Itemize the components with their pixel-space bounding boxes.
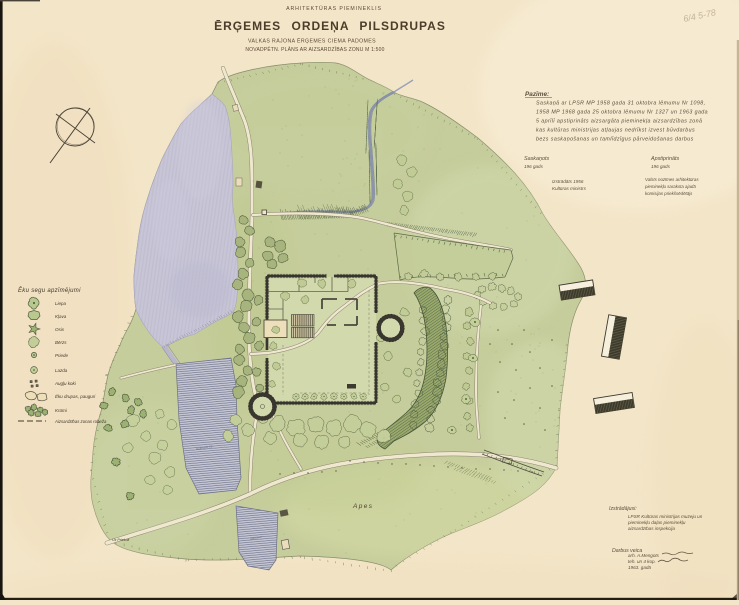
svg-text:Apstiprināts: Apstiprināts — [650, 156, 679, 162]
svg-text:196 gads: 196 gads — [524, 164, 544, 169]
svg-text:teh. un 4 kop.: teh. un 4 kop. — [628, 559, 656, 564]
svg-text:Izstrādājusi:: Izstrādājusi: — [609, 506, 637, 512]
svg-text:Saskaņā ar LPSR MP 1958 gada 3: Saskaņā ar LPSR MP 1958 gada 31 oktobra … — [536, 101, 706, 107]
svg-text:196 gads: 196 gads — [651, 164, 671, 169]
svg-text:1958 MP 1968 gada 25 oktobra l: 1958 MP 1968 gada 25 oktobra lēmumu Nr 1… — [536, 110, 708, 116]
svg-text:1963. gadā: 1963. gadā — [628, 565, 651, 570]
svg-text:Ēku segu apzīmējumi: Ēku segu apzīmējumi — [18, 287, 81, 294]
svg-text:Priede: Priede — [55, 353, 69, 358]
svg-text:Valsts nozīmes arhitektūras: Valsts nozīmes arhitektūras — [645, 177, 699, 182]
svg-text:Kultūras ministrs: Kultūras ministrs — [552, 186, 587, 191]
svg-text:arh. A.Mengots: arh. A.Mengots — [628, 553, 660, 558]
svg-text:ĒRĢEMES ORDEŅA PILSDRUPAS: ĒRĢEMES ORDEŅA PILSDRUPAS — [214, 19, 446, 33]
svg-text:Lazda: Lazda — [55, 368, 68, 373]
svg-text:VALKAS RAJONA ĒRĢEMES CIEMA PA: VALKAS RAJONA ĒRĢEMES CIEMA PADOMES — [248, 38, 376, 45]
svg-text:5 aprīlī apstiprināts aizsargā: 5 aprīlī apstiprināts aizsargāta piemine… — [536, 119, 702, 125]
svg-text:LPSR Kultūras ministrijas muze: LPSR Kultūras ministrijas muzeju un — [628, 514, 703, 519]
svg-text:kas kultūras ministrijas atļau: kas kultūras ministrijas atļaujas nedrīk… — [536, 128, 695, 134]
svg-text:Augļu koki: Augļu koki — [54, 381, 77, 386]
svg-text:pieminekļu daļas pieminekļu: pieminekļu daļas pieminekļu — [627, 520, 686, 525]
svg-text:Aizsardzības zonas robeža: Aizsardzības zonas robeža — [54, 419, 107, 424]
svg-text:pieminekļu saraksta ajadā: pieminekļu saraksta ajadā — [644, 184, 696, 189]
svg-text:Saskaņots: Saskaņots — [524, 156, 549, 162]
svg-text:Ēku drupas, pauguri: Ēku drupas, pauguri — [55, 393, 96, 399]
svg-text:aizsardzības inspekcija: aizsardzības inspekcija — [628, 526, 675, 531]
svg-text:Uz Priekuli: Uz Priekuli — [112, 538, 129, 542]
svg-text:Apes: Apes — [352, 503, 373, 510]
svg-text:Krūmi: Krūmi — [55, 408, 68, 413]
svg-text:Kļava: Kļava — [55, 314, 67, 319]
svg-text:Liepa: Liepa — [55, 301, 67, 306]
svg-text:ARHITEKTŪRAS PIEMINEKLIS: ARHITEKTŪRAS PIEMINEKLIS — [286, 5, 382, 12]
svg-text:Pazīme:: Pazīme: — [525, 91, 549, 98]
svg-text:Izstrādāts 1956: Izstrādāts 1956 — [552, 179, 584, 184]
svg-text:komisijas priekšsēdētājs: komisijas priekšsēdētājs — [645, 191, 693, 196]
svg-text:NOVADPĒTN. PLĀNS AR AIZSARDZĪB: NOVADPĒTN. PLĀNS AR AIZSARDZĪBAS ZONU M … — [245, 46, 384, 53]
svg-text:Osis: Osis — [55, 327, 65, 332]
svg-text:bezs saskaņošanas un tamlīdzīg: bezs saskaņošanas un tamlīdzīgus pārveid… — [536, 137, 694, 143]
svg-text:Bērzs: Bērzs — [55, 340, 67, 345]
